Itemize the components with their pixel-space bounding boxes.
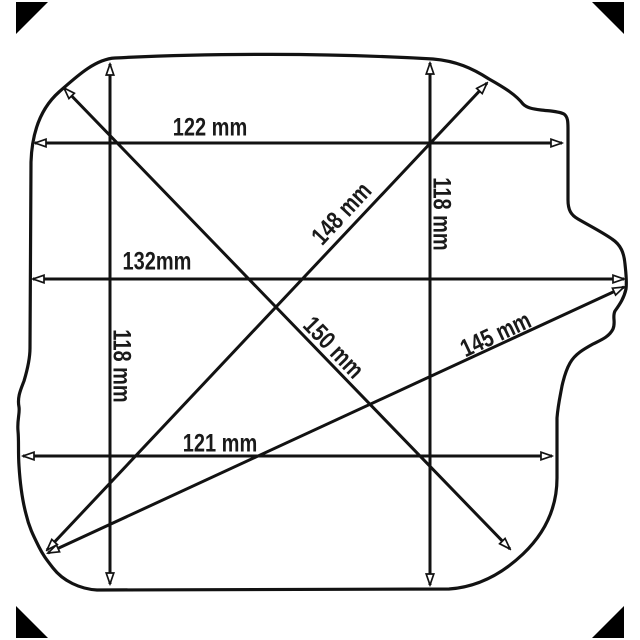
dim-label-height-right: 118 mm (429, 177, 454, 250)
dim-line-diagonal-148 (47, 83, 487, 550)
dim-label-width-middle: 132mm (123, 250, 192, 275)
dimension-diagram: 122 mm 132mm 121 mm 118 mm 118 mm 148 mm… (0, 0, 640, 640)
corner-mark-bottom-left (16, 606, 48, 638)
dim-label-width-bottom: 121 mm (183, 432, 258, 457)
dim-label-height-left: 118 mm (109, 329, 134, 402)
dim-line-diagonal-145 (48, 287, 624, 553)
corner-mark-top-right (592, 2, 624, 34)
dim-line-diagonal-150 (64, 88, 510, 549)
corner-mark-top-left (16, 2, 48, 34)
corner-mark-bottom-right (592, 606, 624, 638)
dim-label-width-top: 122 mm (173, 116, 248, 141)
